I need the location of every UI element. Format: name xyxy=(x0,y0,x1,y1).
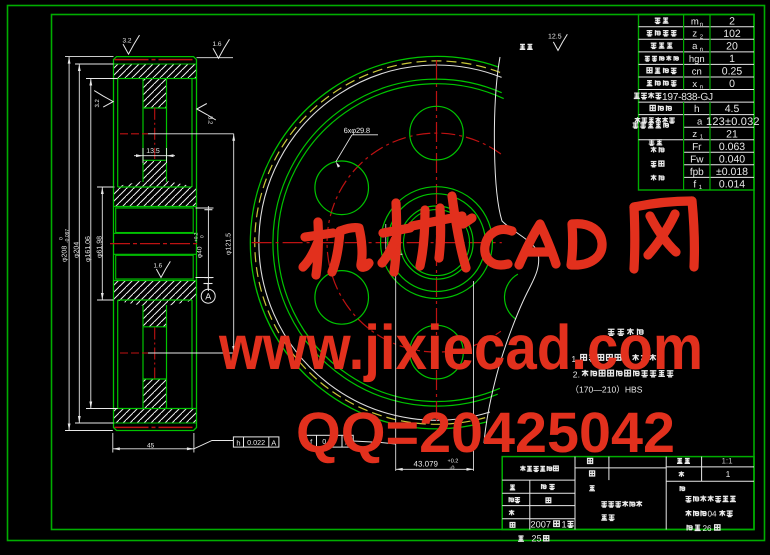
svg-text:h: h xyxy=(236,438,240,447)
svg-text:1: 1 xyxy=(726,469,731,479)
svg-text:20: 20 xyxy=(726,40,738,52)
svg-text:cn: cn xyxy=(692,66,702,77)
svg-text:1.6: 1.6 xyxy=(154,263,163,270)
svg-text:21: 21 xyxy=(726,128,738,140)
svg-text:6xφ29.8: 6xφ29.8 xyxy=(344,126,370,135)
svg-text:φ204: φ204 xyxy=(73,242,80,258)
svg-text:04: 04 xyxy=(708,510,718,519)
svg-text:Fr: Fr xyxy=(692,142,702,153)
svg-text:+0.2: +0.2 xyxy=(194,232,200,242)
svg-text:n: n xyxy=(700,22,703,28)
svg-text:n: n xyxy=(700,47,703,53)
svg-text:3.2: 3.2 xyxy=(207,116,214,125)
svg-text:h: h xyxy=(694,104,700,115)
svg-text:0.063: 0.063 xyxy=(719,141,745,153)
svg-text:φ161.06: φ161.06 xyxy=(85,236,92,262)
svg-text:0.25: 0.25 xyxy=(722,66,743,78)
svg-text:13.5: 13.5 xyxy=(146,148,160,155)
svg-text:z: z xyxy=(692,29,697,40)
svg-text:12.5: 12.5 xyxy=(548,34,562,41)
svg-text:4.5: 4.5 xyxy=(725,103,740,115)
svg-text:3.2: 3.2 xyxy=(94,98,101,107)
svg-text:45: 45 xyxy=(147,442,155,449)
svg-text:1: 1 xyxy=(729,53,735,65)
svg-text:m: m xyxy=(691,16,699,27)
svg-text:±0.018: ±0.018 xyxy=(716,166,748,178)
svg-text:QQ=20425042: QQ=20425042 xyxy=(296,401,675,465)
svg-text:3.2: 3.2 xyxy=(123,38,132,45)
svg-text:-0: -0 xyxy=(450,466,455,472)
svg-text:123±0.032: 123±0.032 xyxy=(706,116,760,128)
svg-text:φ121.5: φ121.5 xyxy=(226,233,233,255)
svg-text:-0.097: -0.097 xyxy=(65,229,71,243)
svg-text:A: A xyxy=(271,438,276,447)
svg-text:n: n xyxy=(700,84,703,90)
svg-text:26: 26 xyxy=(703,524,713,533)
svg-text:z: z xyxy=(692,129,697,140)
svg-text:φ208: φ208 xyxy=(62,246,69,262)
svg-text:f: f xyxy=(693,180,696,191)
svg-text:Fw: Fw xyxy=(690,154,704,165)
svg-text:fpb: fpb xyxy=(690,167,704,178)
svg-text:a: a xyxy=(697,117,703,128)
svg-text:1: 1 xyxy=(562,520,567,530)
svg-text:2007: 2007 xyxy=(531,520,551,530)
svg-text:0.014: 0.014 xyxy=(719,179,745,191)
svg-text:2: 2 xyxy=(729,15,735,27)
svg-text:25: 25 xyxy=(532,534,542,544)
svg-text:0: 0 xyxy=(729,78,735,90)
svg-text:（170—210）HBS: （170—210）HBS xyxy=(570,385,642,395)
svg-text:www.jixiecad.com: www.jixiecad.com xyxy=(218,313,703,383)
svg-text:0: 0 xyxy=(200,235,206,238)
svg-text:0.022: 0.022 xyxy=(247,438,265,447)
svg-text:197-838-GJ: 197-838-GJ xyxy=(662,92,713,103)
svg-text:φ61.98: φ61.98 xyxy=(96,236,103,258)
svg-text:1.6: 1.6 xyxy=(213,41,222,48)
svg-text:φ40: φ40 xyxy=(197,246,204,258)
svg-text:0.040: 0.040 xyxy=(719,153,745,165)
svg-text:x: x xyxy=(692,79,697,90)
svg-text:hgn: hgn xyxy=(689,54,705,65)
svg-text:a: a xyxy=(692,41,698,52)
svg-text:102: 102 xyxy=(723,28,741,40)
svg-text:A: A xyxy=(205,292,211,302)
svg-text:1:1: 1:1 xyxy=(721,457,733,466)
